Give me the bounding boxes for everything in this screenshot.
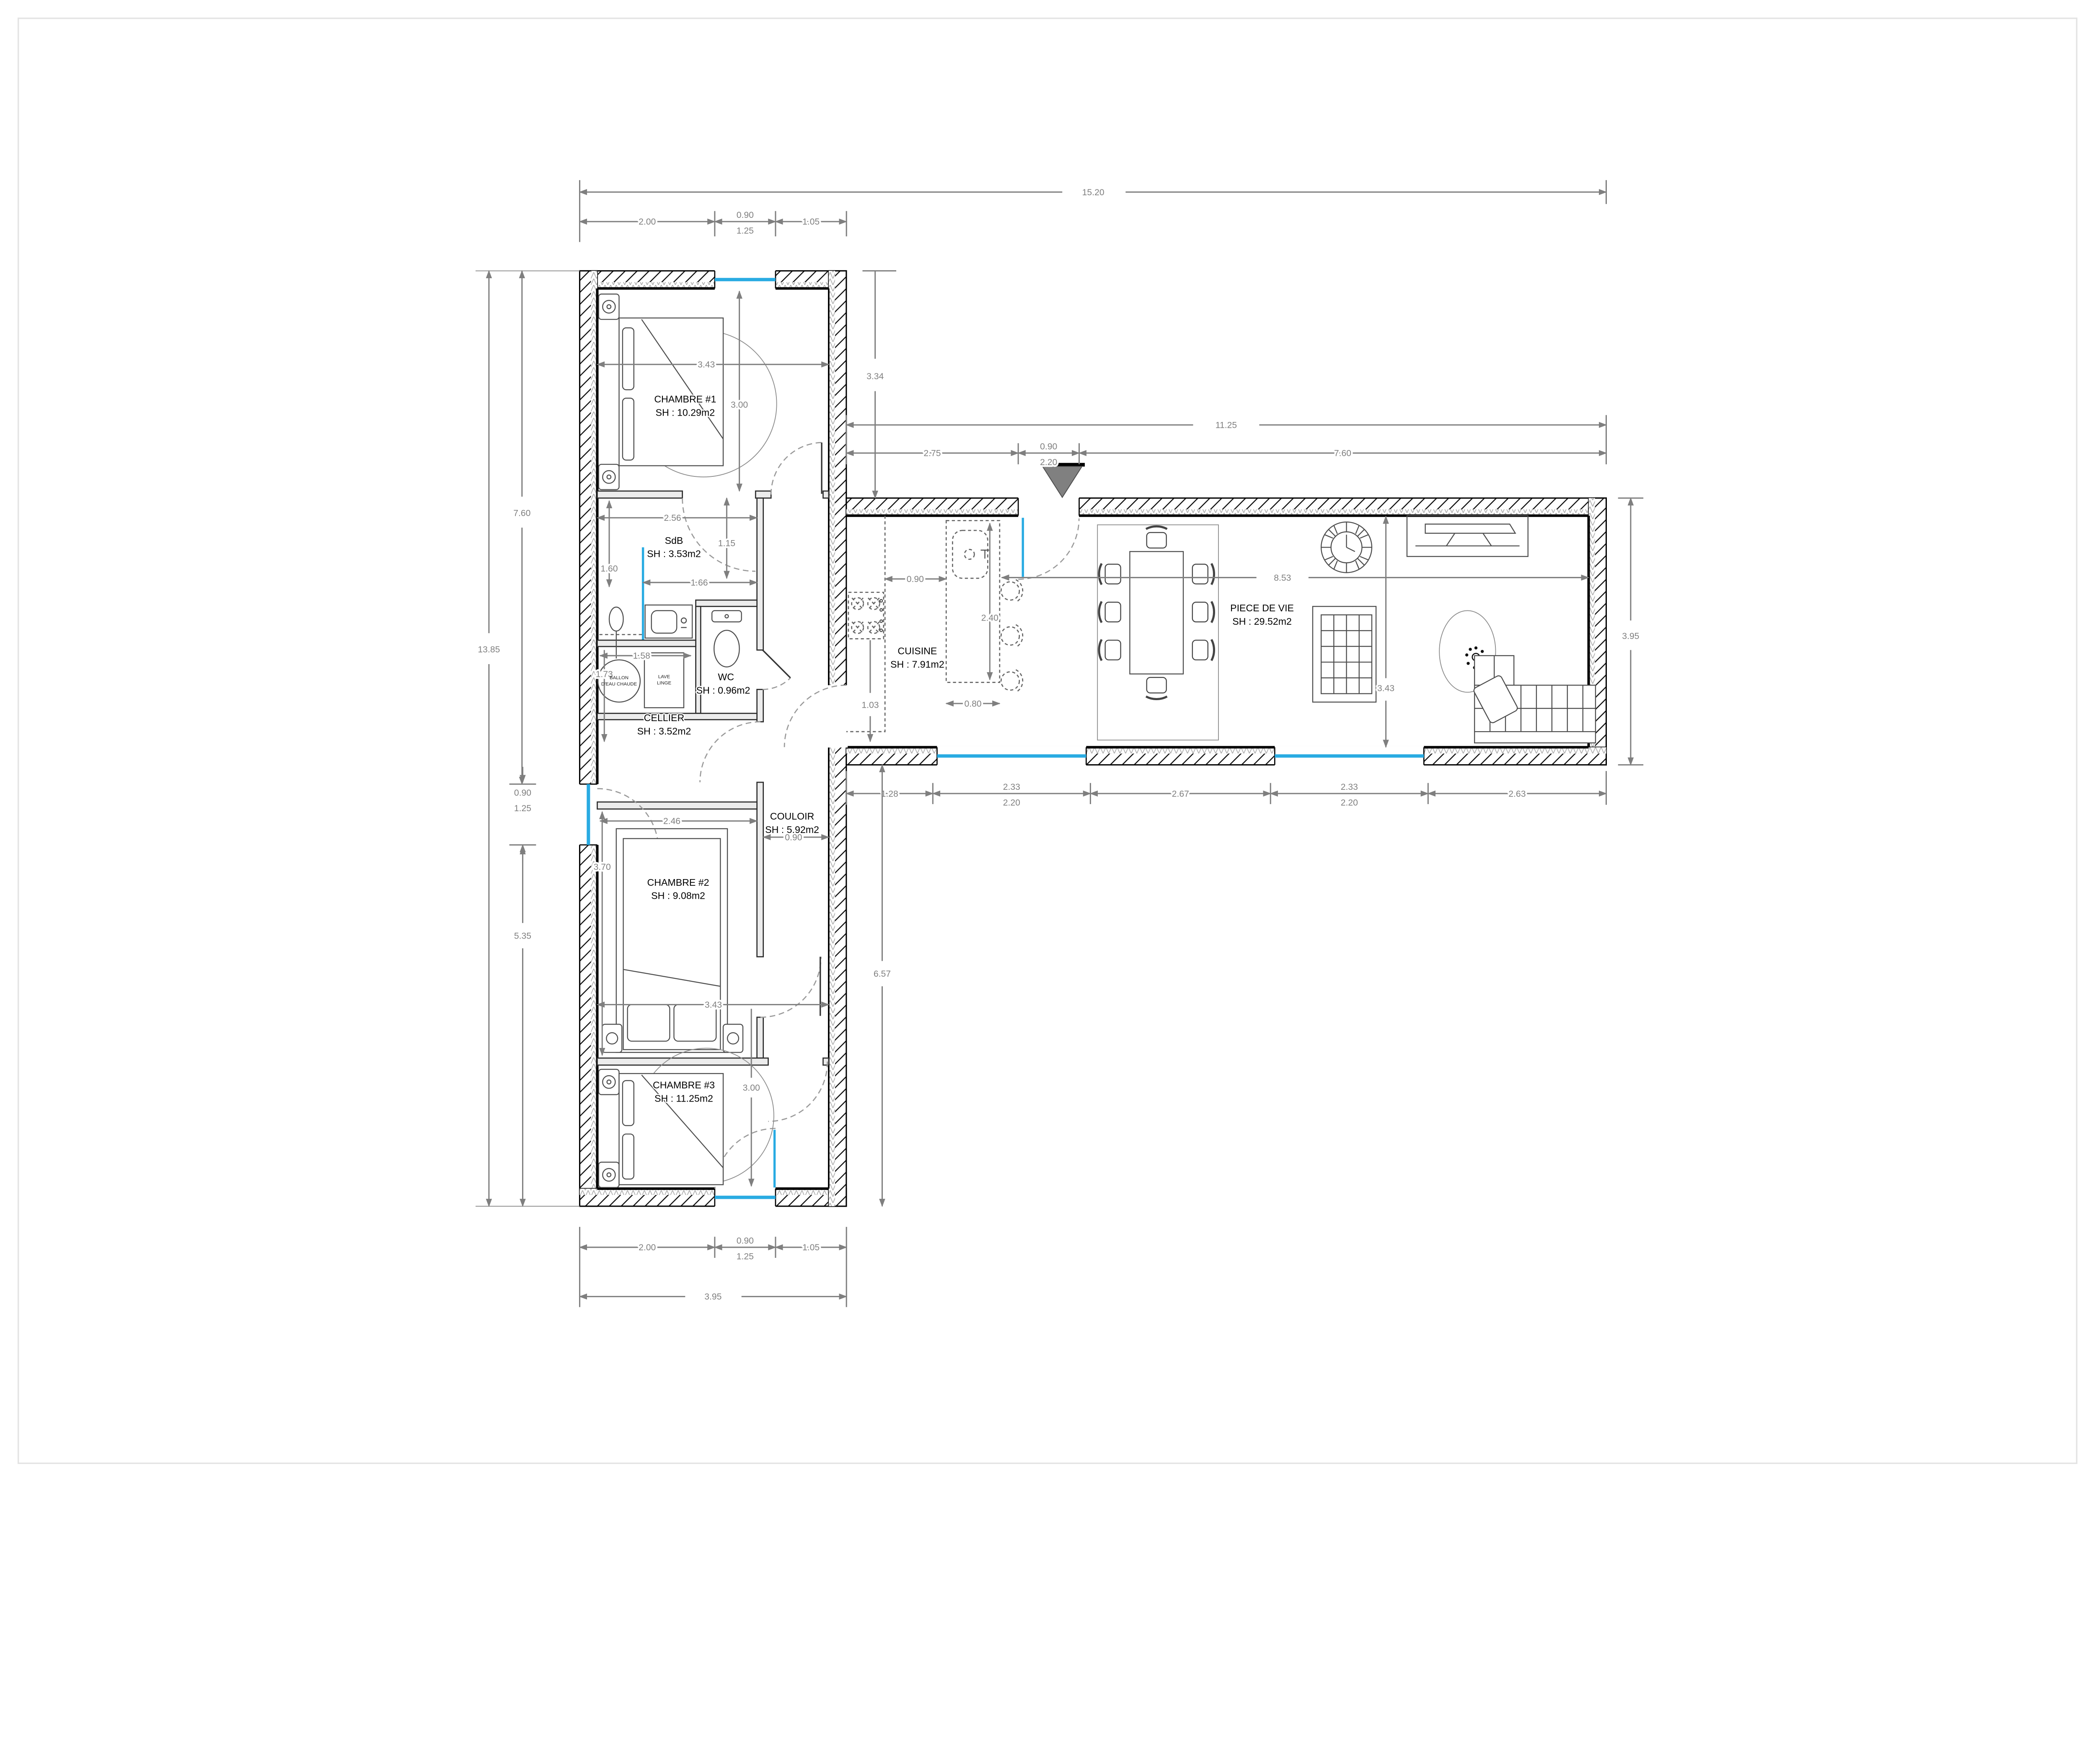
room-name-cuisine: CUISINE bbox=[897, 645, 937, 656]
room-area-chambre1: SH : 10.29m2 bbox=[656, 407, 715, 418]
entrance-marker bbox=[1040, 463, 1085, 497]
tv-unit bbox=[1407, 516, 1528, 556]
entrance-door-icon bbox=[1018, 518, 1079, 579]
dim-wing-b2: 2.20 bbox=[1040, 458, 1057, 467]
room-area-chambre3: SH : 11.25m2 bbox=[654, 1093, 713, 1104]
french-door-swing-icon bbox=[715, 1128, 776, 1189]
counter-icon bbox=[846, 516, 885, 732]
room-name-piece-de-vie: PIECE DE VIE bbox=[1230, 603, 1294, 613]
island-icon bbox=[946, 520, 1000, 682]
dim-wing-height: 3.95 bbox=[1622, 631, 1639, 641]
dim-bottom-a: 2.00 bbox=[639, 1243, 656, 1252]
dim-sdb-r: 1.15 bbox=[718, 539, 735, 548]
door-chambre2-icon bbox=[760, 957, 821, 1017]
dim-sdb-l: 1.60 bbox=[600, 564, 618, 574]
dim-wing-c: 7.60 bbox=[1334, 449, 1351, 458]
door-cellier-icon bbox=[700, 722, 760, 782]
dim-top-offset: 3.34 bbox=[866, 372, 884, 381]
shelf-unit bbox=[1313, 606, 1376, 702]
room-area-cellier: SH : 3.52m2 bbox=[637, 726, 691, 737]
dim-wing-bot-e: 2.63 bbox=[1508, 789, 1526, 799]
dim-wing-bot-d2: 2.20 bbox=[1341, 798, 1358, 807]
dim-living-h: 3.43 bbox=[1377, 683, 1394, 693]
stove-icon bbox=[848, 592, 884, 639]
page-border bbox=[18, 18, 2077, 1464]
room-name-wc: WC bbox=[718, 672, 734, 683]
door-chambre3-icon bbox=[768, 1062, 827, 1122]
dim-left-a: 7.60 bbox=[513, 508, 530, 518]
sink-icon bbox=[952, 530, 988, 578]
dim-wing-bot-d: 2.33 bbox=[1341, 782, 1358, 792]
dim-lower-height: 6.57 bbox=[874, 969, 891, 979]
room-area-chambre2: SH : 9.08m2 bbox=[651, 890, 705, 901]
dim-living-w: 8.53 bbox=[1274, 573, 1291, 583]
tv-icon bbox=[1425, 524, 1516, 533]
dim-wing-bot-a: 1.28 bbox=[881, 789, 898, 799]
dim-wing-a: 2.75 bbox=[923, 449, 941, 458]
room-area-wc: SH : 0.96m2 bbox=[696, 685, 750, 696]
dim-bottom-total: 3.95 bbox=[704, 1292, 722, 1302]
label-lave-2: LINGE bbox=[657, 681, 672, 686]
dim-wing-bot-b2: 2.20 bbox=[1003, 798, 1020, 807]
dim-top-b2: 1.25 bbox=[737, 226, 754, 235]
dim-passage: 1.03 bbox=[861, 701, 879, 710]
dim-kit-gap: 0.90 bbox=[907, 574, 924, 584]
room-area-sdb: SH : 3.53m2 bbox=[647, 548, 701, 559]
dim-bottom-b2: 1.25 bbox=[737, 1252, 754, 1261]
bed-chambre1 bbox=[599, 294, 777, 490]
floor-plan: 15.20 2.00 0.90 1.25 1.05 11.25 2.75 0.9… bbox=[0, 0, 2095, 1482]
dim-island-w: 0.80 bbox=[964, 699, 981, 709]
room-area-piece-de-vie: SH : 29.52m2 bbox=[1232, 616, 1292, 627]
exterior-walls bbox=[579, 271, 1606, 1206]
dim-top-a: 2.00 bbox=[639, 217, 656, 227]
dim-ch2-w: 2.46 bbox=[663, 817, 680, 826]
dim-ch1-w: 3.43 bbox=[698, 360, 715, 370]
dim-sdb-inner: 1.66 bbox=[691, 578, 708, 588]
dim-top-c: 1.05 bbox=[802, 217, 820, 227]
room-name-chambre3: CHAMBRE #3 bbox=[653, 1079, 715, 1090]
room-area-couloir: SH : 5.92m2 bbox=[765, 824, 819, 835]
dim-sdb-w: 2.56 bbox=[664, 513, 681, 523]
room-name-sdb: SdB bbox=[665, 535, 683, 546]
dim-bottom-b: 0.90 bbox=[737, 1236, 754, 1246]
dim-ch1-h: 3.00 bbox=[731, 400, 748, 410]
label-ballon-2: D'EAU CHAUDE bbox=[601, 682, 637, 687]
dim-ch2-h: 3.70 bbox=[594, 862, 611, 872]
washing-machine-icon bbox=[644, 653, 684, 708]
room-name-couloir: COULOIR bbox=[770, 811, 815, 822]
clock-icon bbox=[1321, 522, 1372, 573]
door-wc-icon bbox=[763, 678, 790, 690]
dim-left-total: 13.85 bbox=[478, 645, 500, 654]
dim-wing-b: 0.90 bbox=[1040, 442, 1057, 452]
dim-left-b: 0.90 bbox=[514, 788, 531, 798]
expansion-vessel-icon bbox=[609, 607, 623, 631]
entrance-arrow-icon bbox=[1042, 466, 1082, 497]
dim-wing-width: 11.25 bbox=[1216, 420, 1237, 430]
dim-island-l: 2.40 bbox=[981, 613, 998, 623]
label-ballon-1: BALLON bbox=[610, 675, 628, 680]
dim-overall-width: 15.20 bbox=[1082, 188, 1104, 197]
dim-left-c: 5.35 bbox=[514, 931, 531, 941]
dim-wing-bot-c: 2.67 bbox=[1172, 789, 1189, 799]
label-lave-1: LAVE bbox=[658, 675, 670, 680]
dim-ch3-w: 3.43 bbox=[705, 1000, 722, 1010]
dim-left-b2: 1.25 bbox=[514, 804, 531, 813]
toilet-icon bbox=[712, 610, 742, 667]
room-area-cuisine: SH : 7.91m2 bbox=[890, 659, 944, 670]
dim-top-b: 0.90 bbox=[737, 210, 754, 220]
sofa bbox=[1473, 656, 1596, 743]
kitchen bbox=[846, 516, 1023, 732]
room-name-cellier: CELLIER bbox=[644, 712, 685, 723]
bed-chambre3 bbox=[599, 1048, 774, 1187]
door-chambre1-icon bbox=[771, 442, 823, 494]
room-name-chambre2: CHAMBRE #2 bbox=[647, 877, 709, 888]
dim-wing-bot-b: 2.33 bbox=[1003, 782, 1020, 792]
door-sdb-icon bbox=[683, 498, 756, 572]
bar-stools-icon bbox=[1001, 579, 1023, 692]
room-name-chambre1: CHAMBRE #1 bbox=[654, 393, 716, 404]
dim-cel-w: 1.58 bbox=[633, 651, 650, 661]
dim-bottom-c: 1.05 bbox=[802, 1243, 820, 1252]
dining-set bbox=[1097, 525, 1218, 740]
bed-chambre2 bbox=[602, 829, 743, 1053]
dim-ch3-h: 3.00 bbox=[743, 1083, 760, 1093]
